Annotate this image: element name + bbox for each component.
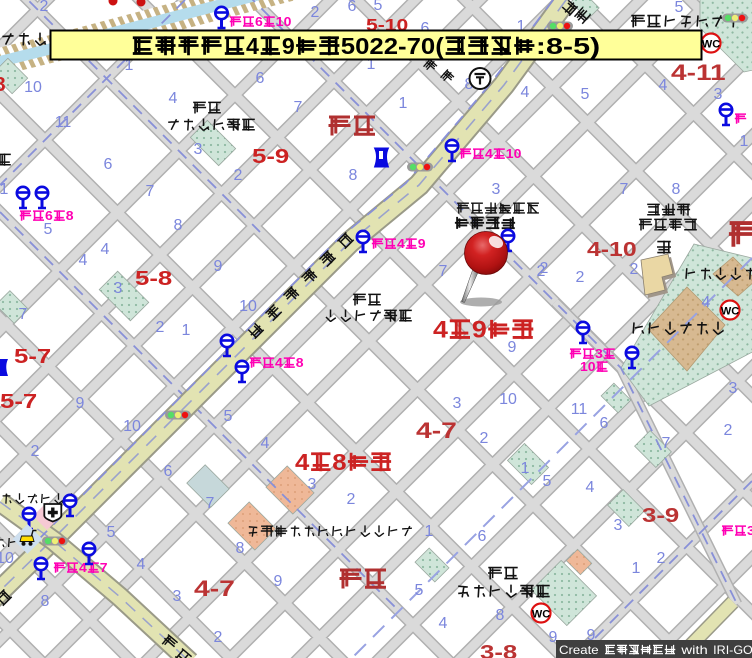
svg-text:1: 1	[0, 181, 9, 198]
svg-text:5: 5	[44, 221, 53, 238]
svg-text:4: 4	[295, 449, 310, 475]
svg-text:2: 2	[537, 263, 546, 280]
svg-text:4: 4	[521, 84, 530, 101]
svg-text:9: 9	[508, 339, 517, 356]
svg-text:1: 1	[399, 95, 408, 112]
svg-text:8: 8	[0, 74, 6, 96]
svg-text:2: 2	[480, 430, 489, 447]
svg-text:5: 5	[543, 473, 552, 490]
svg-text:3: 3	[308, 476, 317, 493]
svg-text:4: 4	[261, 435, 270, 452]
svg-text:3: 3	[492, 181, 501, 198]
svg-text:8: 8	[174, 217, 183, 234]
svg-text:8: 8	[41, 593, 50, 610]
svg-text:10: 10	[0, 550, 14, 567]
svg-text:2: 2	[31, 443, 40, 460]
svg-text:2: 2	[214, 629, 223, 646]
svg-text:7: 7	[206, 495, 215, 512]
svg-text:8: 8	[236, 540, 245, 557]
svg-text:9: 9	[282, 33, 295, 59]
svg-text:7: 7	[19, 306, 28, 323]
svg-text:6: 6	[104, 156, 113, 173]
svg-text:4: 4	[79, 252, 88, 269]
svg-text:4: 4	[433, 317, 449, 344]
svg-text:10: 10	[276, 14, 292, 29]
svg-text:10: 10	[506, 146, 522, 161]
svg-text:8: 8	[672, 181, 681, 198]
svg-text:10: 10	[499, 391, 517, 408]
svg-text:4: 4	[79, 560, 88, 575]
svg-text:7: 7	[439, 263, 448, 280]
svg-text:6: 6	[600, 415, 609, 432]
svg-text:8: 8	[296, 355, 304, 370]
svg-text:3: 3	[714, 86, 723, 103]
svg-text:7: 7	[146, 183, 155, 200]
svg-text:WC: WC	[702, 39, 720, 51]
svg-text:2: 2	[630, 261, 639, 278]
svg-text:2: 2	[657, 550, 666, 567]
svg-text:1: 1	[182, 322, 191, 339]
svg-text:6: 6	[255, 14, 263, 29]
svg-text:3: 3	[595, 346, 603, 361]
svg-text:8: 8	[66, 208, 74, 223]
svg-text:with: with	[680, 643, 708, 657]
svg-text:4: 4	[659, 77, 668, 94]
svg-text:5: 5	[107, 524, 116, 541]
svg-text:5: 5	[374, 0, 383, 14]
svg-text:5: 5	[675, 0, 684, 16]
svg-text:11: 11	[55, 114, 72, 131]
svg-text:9: 9	[214, 258, 223, 275]
svg-text:4-10: 4-10	[587, 239, 637, 261]
svg-text:4: 4	[439, 615, 448, 632]
svg-text:1: 1	[740, 133, 749, 150]
svg-text:Create: Create	[559, 643, 599, 657]
svg-text:8: 8	[496, 607, 505, 624]
svg-text::8-5): :8-5)	[536, 33, 600, 59]
svg-text:10: 10	[580, 359, 596, 374]
svg-text:3: 3	[614, 517, 623, 534]
svg-text:3: 3	[729, 380, 738, 397]
svg-text:5-8: 5-8	[135, 268, 172, 290]
svg-text:9: 9	[76, 395, 85, 412]
svg-text:5: 5	[581, 86, 590, 103]
svg-text:3-8: 3-8	[480, 642, 517, 658]
svg-text:1: 1	[521, 460, 530, 477]
svg-text:4: 4	[246, 33, 259, 59]
svg-text:9: 9	[274, 573, 283, 590]
svg-text:3: 3	[114, 280, 123, 297]
svg-text:7: 7	[662, 435, 671, 452]
svg-text:5: 5	[224, 408, 233, 425]
svg-text:WC: WC	[721, 306, 739, 318]
svg-text:5: 5	[415, 582, 424, 599]
svg-text:2: 2	[347, 491, 356, 508]
svg-text:2: 2	[311, 4, 320, 21]
svg-text:7: 7	[100, 560, 108, 575]
svg-text:WC: WC	[532, 609, 550, 621]
svg-text:4: 4	[485, 146, 494, 161]
svg-text:10: 10	[239, 298, 257, 315]
svg-text:4: 4	[275, 355, 284, 370]
svg-text:5-7: 5-7	[14, 346, 51, 368]
svg-text:2: 2	[576, 269, 585, 286]
svg-text:IRI-GO: IRI-GO	[713, 643, 752, 657]
svg-text:5022-70(: 5022-70(	[341, 33, 444, 59]
svg-text:4: 4	[137, 556, 146, 573]
svg-text:8: 8	[349, 167, 358, 184]
svg-text:3: 3	[747, 523, 752, 538]
svg-text:3: 3	[194, 141, 203, 158]
svg-text:6: 6	[478, 528, 487, 545]
svg-text:4-7: 4-7	[194, 576, 235, 601]
svg-text:3: 3	[173, 588, 182, 605]
svg-text:8: 8	[332, 449, 347, 475]
svg-text:6: 6	[164, 463, 173, 480]
svg-text:3: 3	[453, 395, 462, 412]
svg-text:2: 2	[724, 422, 733, 439]
svg-text:9: 9	[418, 236, 426, 251]
svg-text:1: 1	[425, 523, 434, 540]
svg-text:2: 2	[156, 319, 165, 336]
svg-text:4: 4	[586, 479, 595, 496]
svg-text:1: 1	[632, 560, 641, 577]
svg-text:2: 2	[40, 0, 49, 15]
svg-text:2: 2	[234, 167, 243, 184]
svg-text:4: 4	[101, 241, 110, 258]
svg-text:6: 6	[256, 70, 265, 87]
svg-text:7: 7	[294, 99, 303, 116]
svg-text:4: 4	[169, 90, 178, 107]
svg-text:9: 9	[472, 317, 487, 344]
svg-text:5-7: 5-7	[0, 391, 37, 413]
svg-text:4-7: 4-7	[416, 418, 457, 443]
svg-text:5-9: 5-9	[252, 146, 289, 168]
svg-text:7: 7	[620, 181, 629, 198]
svg-text:3-9: 3-9	[642, 505, 679, 527]
svg-text:6: 6	[348, 0, 357, 15]
svg-text:11: 11	[571, 401, 588, 418]
svg-text:4: 4	[397, 236, 406, 251]
svg-text:10: 10	[24, 79, 42, 96]
svg-text:4-11: 4-11	[671, 60, 726, 85]
svg-text:10: 10	[123, 418, 141, 435]
svg-text:4: 4	[702, 294, 711, 311]
